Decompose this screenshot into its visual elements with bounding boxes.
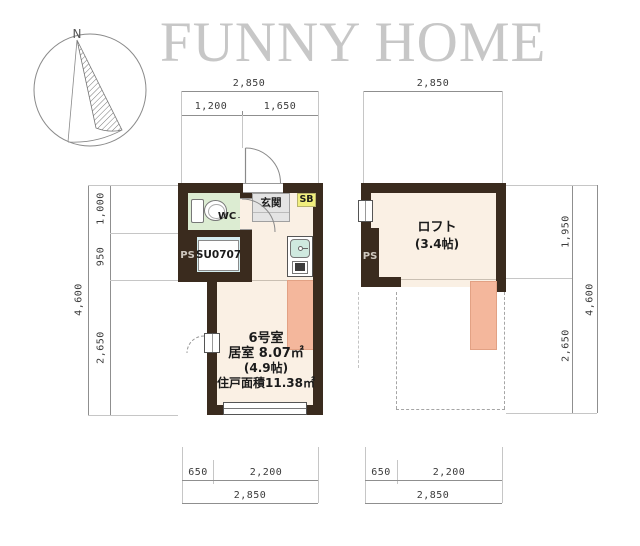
ext-line xyxy=(502,91,503,183)
ext-line xyxy=(506,185,597,186)
north-needle-icon xyxy=(77,40,122,131)
ext-line xyxy=(110,233,178,234)
ext-line xyxy=(242,115,243,148)
loft-wall-right xyxy=(496,183,506,292)
wc-door-opening xyxy=(240,198,252,230)
dim-line xyxy=(182,480,318,481)
dim-line xyxy=(88,185,89,415)
loft-wall-bottom-left xyxy=(361,277,401,287)
wc-label: WC xyxy=(214,211,240,222)
dim-line xyxy=(181,91,318,92)
entrance-door-swing-arc xyxy=(246,148,281,183)
loft-label: ロフト xyxy=(377,220,497,236)
dim-label: 2,850 xyxy=(219,77,279,90)
needle-edge xyxy=(68,40,77,142)
bottom-window xyxy=(223,402,307,415)
dashed-floor-outline-left xyxy=(396,292,397,409)
dim-label: 2,850 xyxy=(220,489,280,502)
ext-line xyxy=(88,415,178,416)
dim-label: 2,850 xyxy=(403,77,463,90)
entrance-label: 玄関 xyxy=(252,195,290,210)
dim-label: 1,950 xyxy=(560,202,573,262)
ext-line xyxy=(181,91,182,183)
dim-label: 1,200 xyxy=(181,100,241,113)
floor-plan-canvas: FUNNY HOME N WC SU0707 PS xyxy=(0,0,640,546)
total-area: 住戸面積11.38㎡ xyxy=(190,376,342,391)
ext-line xyxy=(363,91,364,183)
ext-line xyxy=(502,447,503,503)
room-tatami: (4.9帖) xyxy=(190,361,342,376)
loft-tatami: (3.4帖) xyxy=(377,236,497,252)
dashed-floor-outline-bottom xyxy=(396,409,505,410)
loft-wall-top xyxy=(361,183,506,193)
page-title: FUNNY HOME xyxy=(160,10,560,75)
ext-line xyxy=(318,91,319,183)
dim-label: 2,650 xyxy=(95,318,108,378)
dim-label: 4,600 xyxy=(73,270,86,330)
dim-line xyxy=(365,503,502,504)
ext-line xyxy=(506,413,597,414)
compass: N xyxy=(30,26,152,150)
dashed-floor-outline-right xyxy=(504,292,505,409)
dim-label: 950 xyxy=(95,227,108,287)
dim-line xyxy=(365,480,502,481)
sb-label: SB xyxy=(297,194,316,205)
room-info: 6号室 居室 8.07㎡ (4.9帖) 住戸面積11.38㎡ xyxy=(190,331,342,391)
dim-label: 650 xyxy=(351,466,411,479)
room-name: 6号室 xyxy=(190,331,342,346)
window-line xyxy=(365,201,366,221)
dim-label: 2,650 xyxy=(560,316,573,376)
dim-line xyxy=(182,503,318,504)
ext-line xyxy=(110,280,178,281)
loft-ladder-area xyxy=(470,281,497,350)
toilet-tank-icon xyxy=(191,199,204,223)
window-line xyxy=(224,408,306,409)
loft-open-edge xyxy=(401,279,496,280)
stove-icon xyxy=(295,263,305,271)
dim-line xyxy=(597,185,598,413)
entrance-opening xyxy=(243,183,283,193)
ps-label: PS xyxy=(178,250,197,261)
ext-line xyxy=(318,447,319,503)
dim-line xyxy=(181,115,318,116)
ext-line xyxy=(506,278,572,279)
dashed-ext-line xyxy=(358,292,359,368)
loft-window xyxy=(358,200,373,222)
dim-label: 1,650 xyxy=(250,100,310,113)
dim-line xyxy=(363,91,503,92)
loft-ps-label: PS xyxy=(361,251,379,262)
wall-wc-su xyxy=(178,230,242,237)
room-area: 居室 8.07㎡ xyxy=(190,346,342,361)
faucet-spout xyxy=(303,248,308,249)
north-label: N xyxy=(73,27,82,41)
shower-unit-label: SU0707 xyxy=(195,249,242,261)
loft-info: ロフト (3.4帖) xyxy=(377,220,497,252)
dim-label: 2,850 xyxy=(403,489,463,502)
dim-label: 650 xyxy=(168,466,228,479)
dim-label: 2,200 xyxy=(236,466,296,479)
dim-label: 2,200 xyxy=(419,466,479,479)
dim-line xyxy=(110,185,111,415)
entrance-step-line xyxy=(253,212,289,213)
dim-label: 4,600 xyxy=(584,270,597,330)
